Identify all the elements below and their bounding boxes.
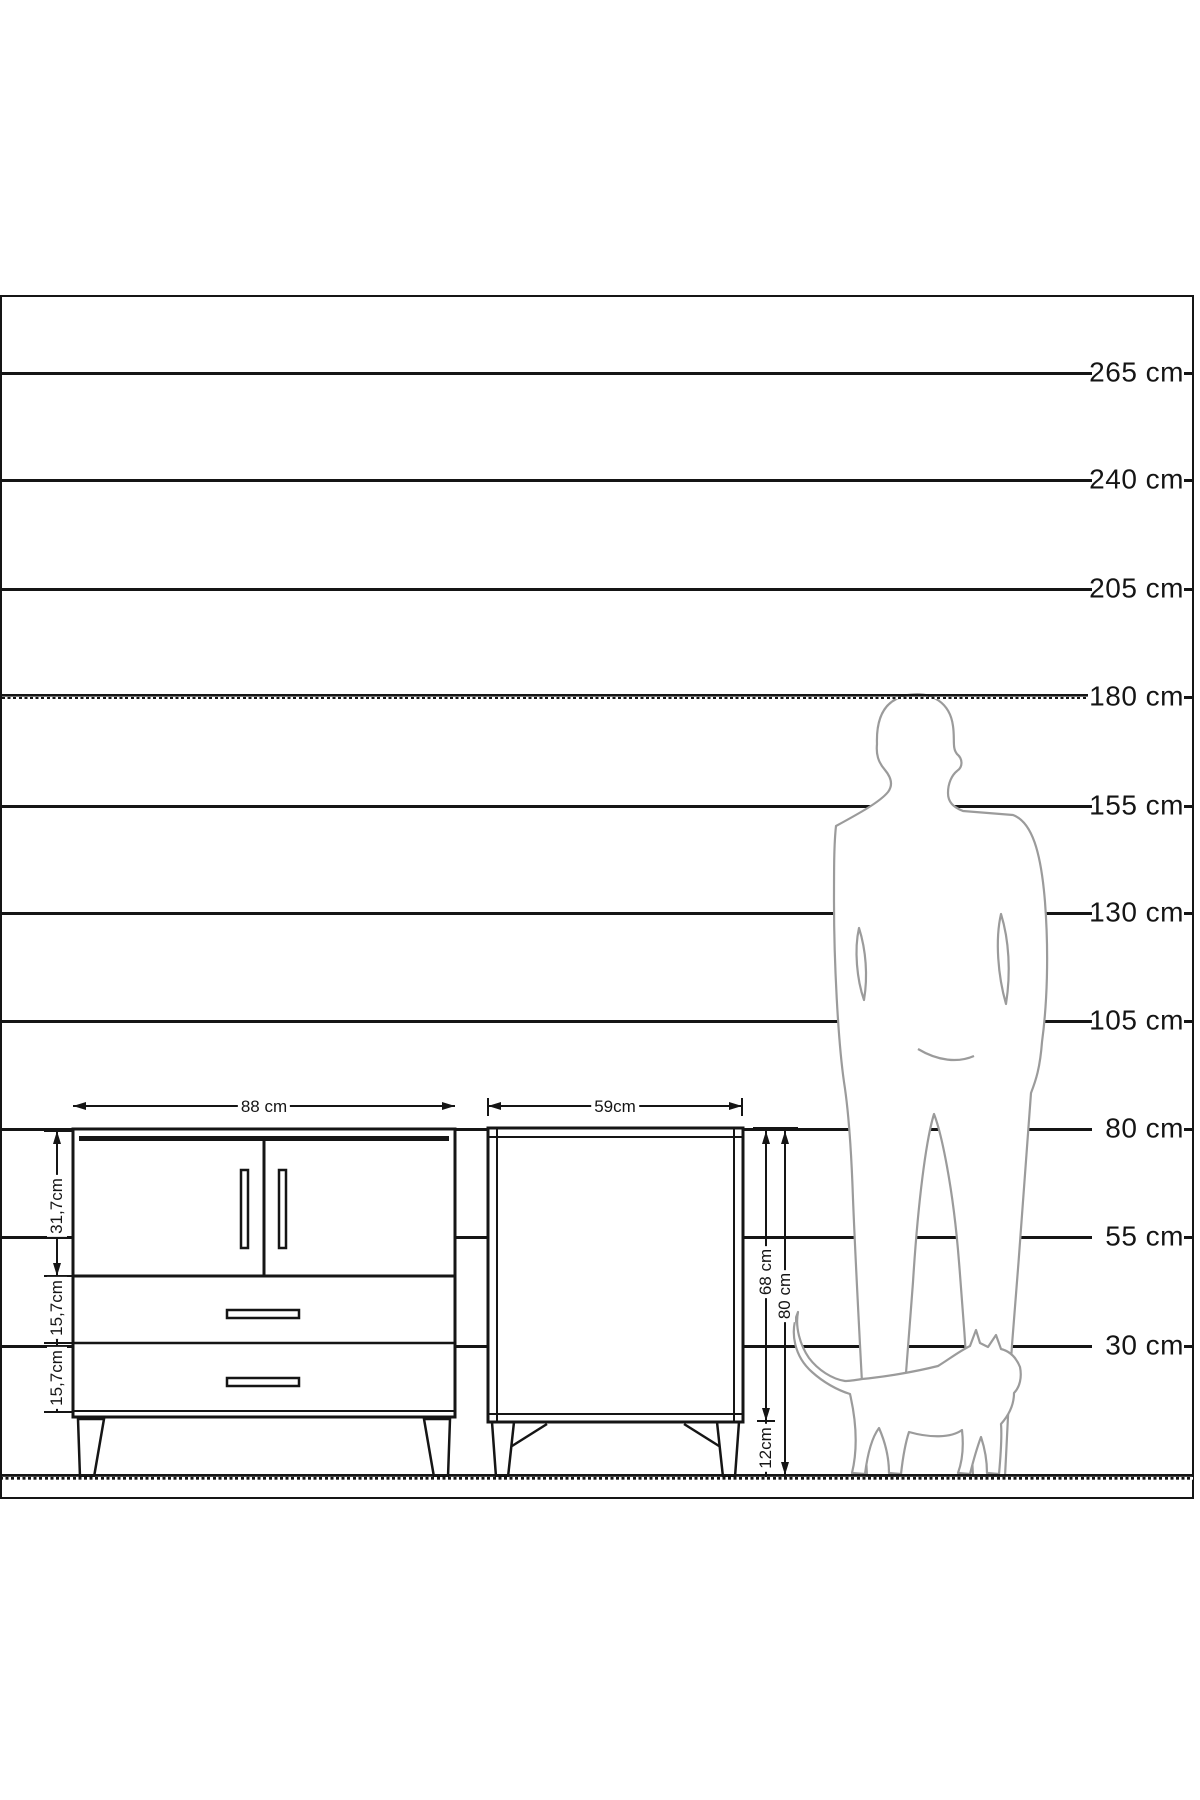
dim-label-drawer1-height: 15,7cm (47, 1277, 67, 1339)
size-diagram: 265 cm240 cm205 cm180 cm155 cm130 cm105 … (0, 0, 1200, 1800)
dim-label-door-height: 31,7cm (47, 1175, 67, 1237)
dim-label-total-height: 80 cm (775, 1270, 795, 1322)
dimension-lines (0, 0, 1200, 1800)
dim-label-leg-height: 12cm (756, 1424, 776, 1472)
dim-label-body-height: 68 cm (756, 1246, 776, 1298)
dim-label-drawer2-height: 15,7cm (47, 1347, 67, 1409)
dim-label-width-side: 59cm (591, 1097, 639, 1117)
dim-label-width-front: 88 cm (238, 1097, 290, 1117)
